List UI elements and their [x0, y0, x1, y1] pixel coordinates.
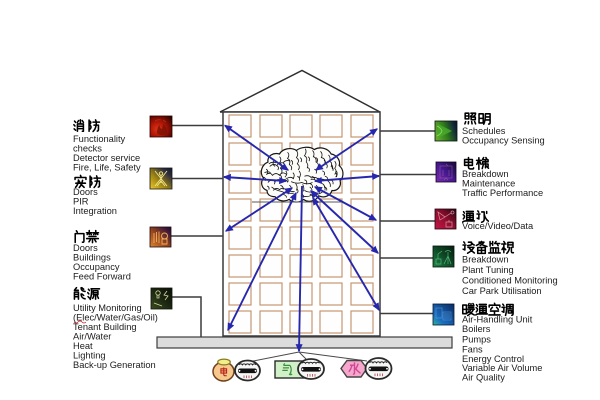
svg-text:Buildings: Buildings — [73, 253, 111, 263]
svg-text:Heat: Heat — [73, 341, 93, 351]
svg-text:Car Park Utilisation: Car Park Utilisation — [462, 286, 542, 296]
svg-text:Functionality: Functionality — [73, 134, 126, 144]
svg-text:Schedules: Schedules — [462, 126, 506, 136]
svg-text:Variable Air Volume: Variable Air Volume — [462, 363, 542, 373]
svg-text:Doors: Doors — [73, 243, 98, 253]
svg-text:Maintenance: Maintenance — [462, 179, 515, 189]
svg-text:Breakdown: Breakdown — [462, 254, 509, 264]
svg-text:(Elec/Water/Gas/Oil): (Elec/Water/Gas/Oil) — [73, 313, 158, 323]
svg-text:Utility Monitoring: Utility Monitoring — [73, 303, 142, 313]
svg-text:Conditioned Monitoring: Conditioned Monitoring — [462, 275, 558, 285]
svg-text:Occupancy: Occupancy — [73, 262, 120, 272]
svg-text:Fans: Fans — [462, 344, 483, 354]
svg-text:Lighting: Lighting — [73, 351, 106, 361]
svg-text:PIR: PIR — [73, 197, 89, 207]
svg-text:Air-Handling Unit: Air-Handling Unit — [462, 314, 533, 324]
svg-text:Voice/Video/Data: Voice/Video/Data — [462, 221, 534, 231]
svg-text:Occupancy Sensing: Occupancy Sensing — [462, 136, 545, 146]
svg-text:Fire, Life, Safety: Fire, Life, Safety — [73, 162, 141, 172]
svg-text:checks: checks — [73, 144, 102, 154]
svg-text:Tenant Building: Tenant Building — [73, 322, 137, 332]
svg-text:Integration: Integration — [73, 206, 117, 216]
svg-text:Traffic Performance: Traffic Performance — [462, 188, 543, 198]
svg-text:Breakdown: Breakdown — [462, 169, 509, 179]
svg-text:Air Quality: Air Quality — [462, 373, 505, 383]
svg-text:Air/Water: Air/Water — [73, 332, 111, 342]
svg-text:Feed Forward: Feed Forward — [73, 272, 131, 282]
svg-text:Boilers: Boilers — [462, 324, 491, 334]
svg-text:Pumps: Pumps — [462, 335, 491, 345]
svg-text:Back-up Generation: Back-up Generation — [73, 360, 156, 370]
svg-text:Doors: Doors — [73, 187, 98, 197]
svg-text:Plant Tuning: Plant Tuning — [462, 265, 514, 275]
